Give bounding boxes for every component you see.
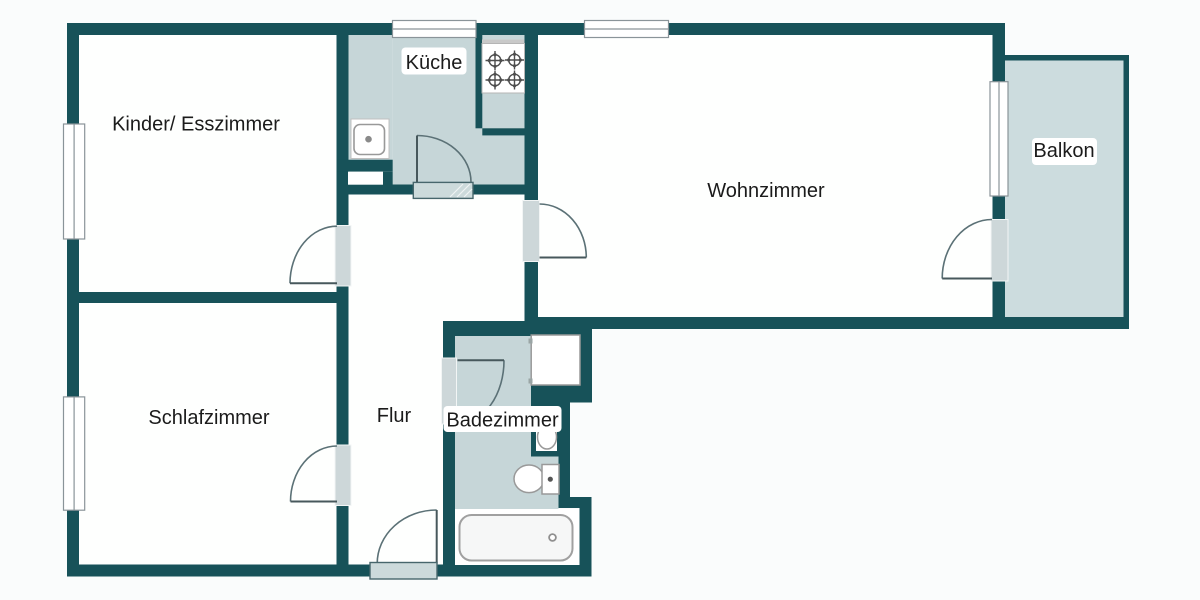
svg-text:Kinder/ Esszimmer: Kinder/ Esszimmer (112, 114, 280, 136)
svg-text:Wohnzimmer: Wohnzimmer (707, 180, 825, 202)
svg-text:Küche: Küche (406, 52, 463, 74)
svg-text:Balkon: Balkon (1033, 140, 1094, 162)
svg-text:Schlafzimmer: Schlafzimmer (148, 407, 269, 429)
svg-text:Flur: Flur (377, 405, 412, 427)
svg-text:Badezimmer: Badezimmer (446, 410, 559, 432)
